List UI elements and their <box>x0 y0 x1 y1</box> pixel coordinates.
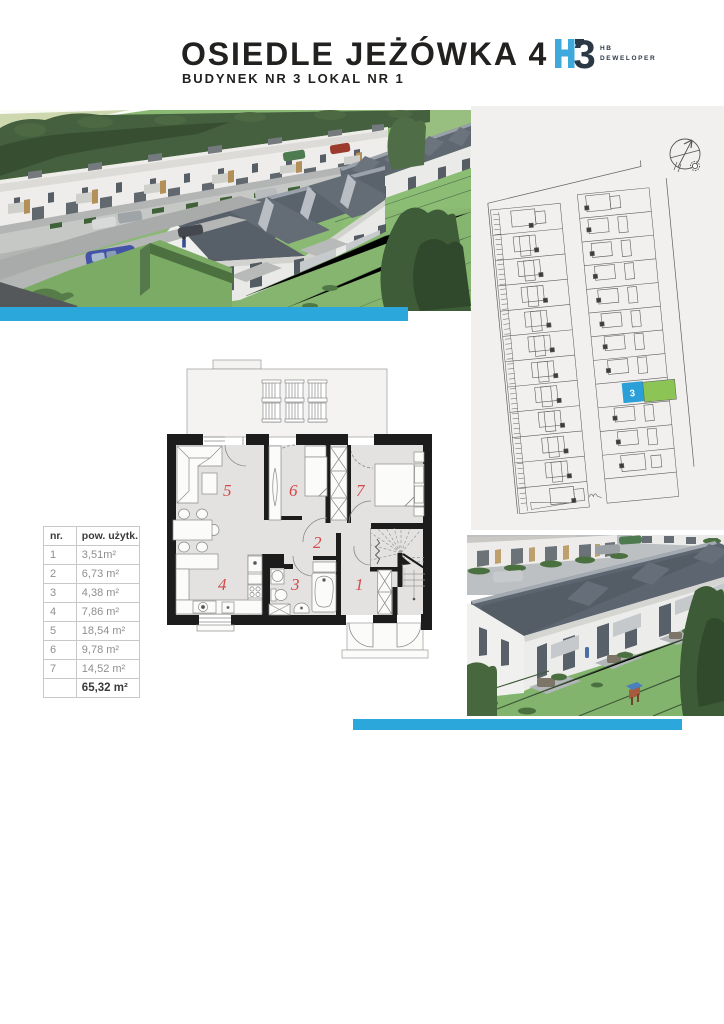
svg-text:3: 3 <box>574 37 596 73</box>
svg-text:6: 6 <box>289 481 298 500</box>
svg-text:2: 2 <box>313 533 322 552</box>
svg-text:HB: HB <box>600 45 613 52</box>
svg-text:3: 3 <box>629 388 635 399</box>
svg-text:1: 1 <box>355 575 364 594</box>
svg-text:5: 5 <box>223 481 232 500</box>
svg-text:DEWELOPER: DEWELOPER <box>600 55 656 62</box>
svg-text:4: 4 <box>218 575 227 594</box>
svg-text:3: 3 <box>290 575 300 594</box>
